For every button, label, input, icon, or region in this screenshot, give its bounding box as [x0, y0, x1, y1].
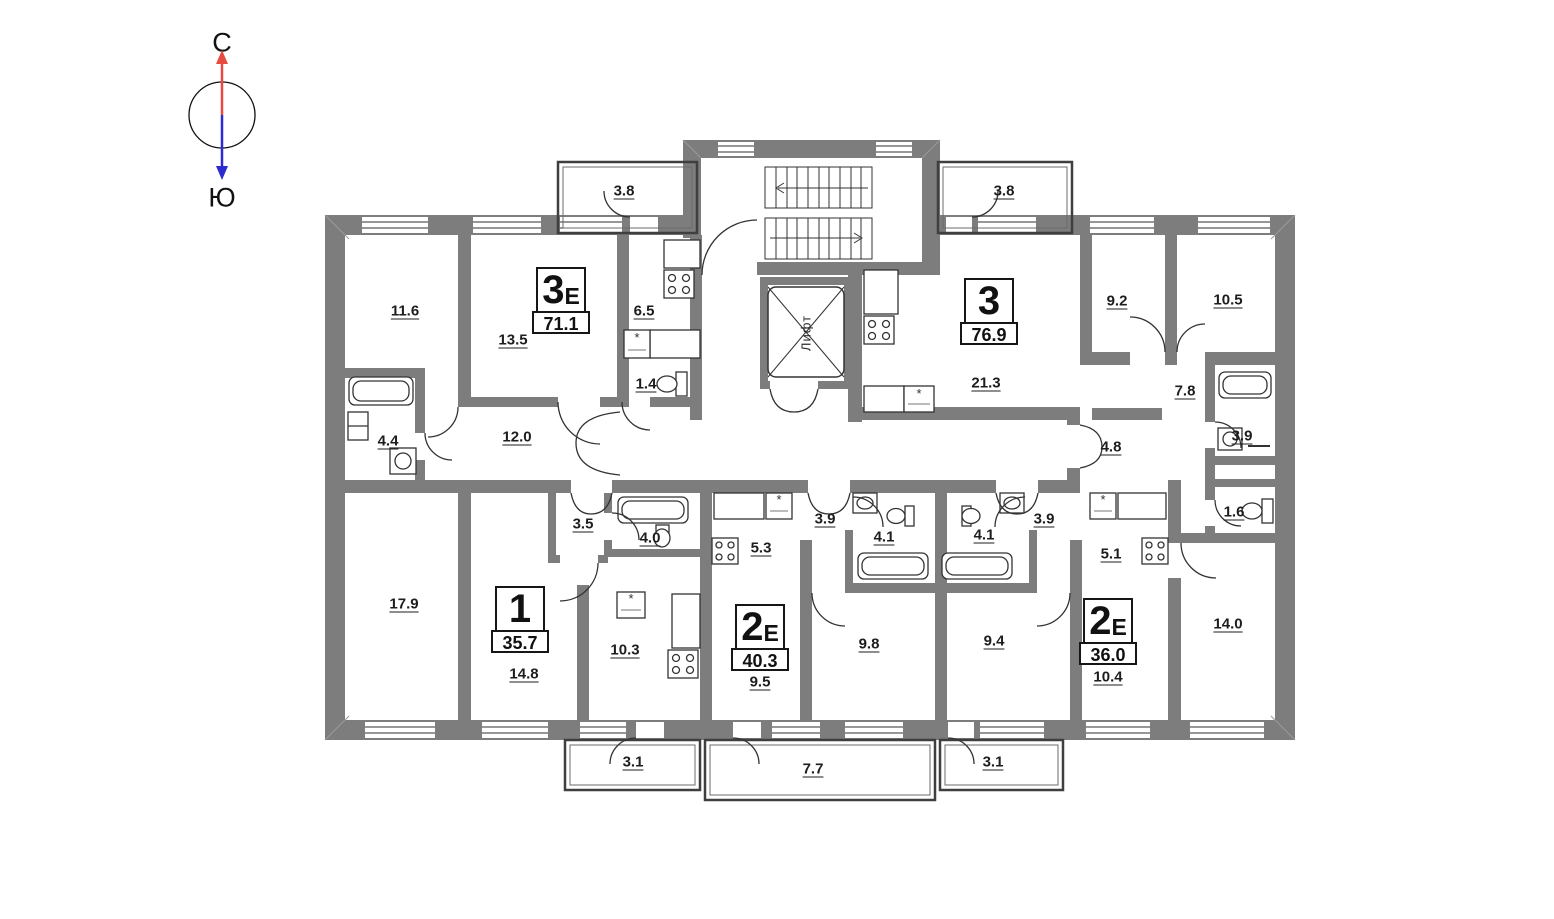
room-area-label: 10.3 [610, 642, 639, 659]
apartment-type: 2Е [1083, 598, 1133, 644]
apartment-type: 3Е [536, 267, 586, 313]
room-area-label: 3.1 [983, 754, 1004, 771]
room-area-label: 3.5 [573, 516, 594, 533]
room-area-label: 21.3 [971, 375, 1000, 392]
svg-text:*: * [776, 492, 781, 507]
room-area-label: 3.1 [623, 754, 644, 771]
apartment-type: 3 [964, 278, 1014, 324]
room-area-label: 11.6 [391, 303, 419, 320]
room-area-label: 3.8 [614, 183, 635, 200]
stairs-icon [765, 167, 872, 259]
room-area-label: 4.8 [1101, 439, 1122, 456]
compass-rose [177, 50, 267, 185]
room-area-label: 3.9 [1034, 511, 1055, 528]
room-area-label: 4.1 [874, 529, 895, 546]
room-area-label: 14.0 [1213, 616, 1242, 633]
room-area-label: 7.7 [803, 761, 824, 778]
room-area-label: 6.5 [634, 303, 655, 320]
room-area-label: 10.5 [1213, 292, 1242, 309]
compass-south-label: Ю [208, 183, 235, 214]
room-area-label: 5.1 [1101, 546, 1122, 563]
room-area-label: 5.3 [751, 540, 772, 557]
room-area-label: 14.8 [509, 666, 538, 683]
apartment-label-2e-right: 2Е 36.0 [1079, 598, 1137, 665]
room-area-label: 12.0 [502, 429, 531, 446]
svg-text:*: * [634, 330, 639, 345]
room-area-label: 9.2 [1107, 293, 1128, 310]
apartment-area: 36.0 [1079, 642, 1137, 665]
room-area-label: 3.9 [815, 511, 836, 528]
room-area-label: 4.4 [378, 433, 399, 450]
apartment-label-1: 1 35.7 [491, 586, 549, 653]
apartment-type: 2Е [735, 604, 785, 650]
apartment-area: 40.3 [731, 648, 789, 671]
svg-text:*: * [1100, 492, 1105, 507]
room-area-label: 1.4 [636, 376, 657, 393]
elevator-label: Лифт [799, 315, 814, 351]
svg-text:*: * [916, 386, 921, 401]
room-area-label: 4.1 [974, 527, 995, 544]
room-area-label: 17.9 [389, 596, 418, 613]
room-area-label: 3.9 [1232, 428, 1253, 445]
svg-text:*: * [628, 591, 633, 606]
room-area-label: 9.8 [859, 636, 880, 653]
room-area-label: 4.0 [640, 530, 661, 547]
room-area-label: 3.8 [994, 183, 1015, 200]
apartment-area: 35.7 [491, 630, 549, 653]
room-area-label: 1.6 [1224, 504, 1245, 521]
apartment-area: 71.1 [532, 311, 590, 334]
room-area-label: 13.5 [498, 332, 527, 349]
apartment-label-2e-left: 2Е 40.3 [731, 604, 789, 671]
room-area-label: 7.8 [1175, 383, 1196, 400]
apartment-type: 1 [495, 586, 545, 632]
apartment-area: 76.9 [960, 322, 1018, 345]
room-area-label: 9.4 [984, 633, 1005, 650]
floor-plan-page: * * * * * [0, 0, 1554, 919]
room-area-label: 9.5 [750, 674, 771, 691]
room-area-label: 10.4 [1093, 669, 1122, 686]
apartment-label-3e: 3Е 71.1 [532, 267, 590, 334]
apartment-label-3: 3 76.9 [960, 278, 1018, 345]
